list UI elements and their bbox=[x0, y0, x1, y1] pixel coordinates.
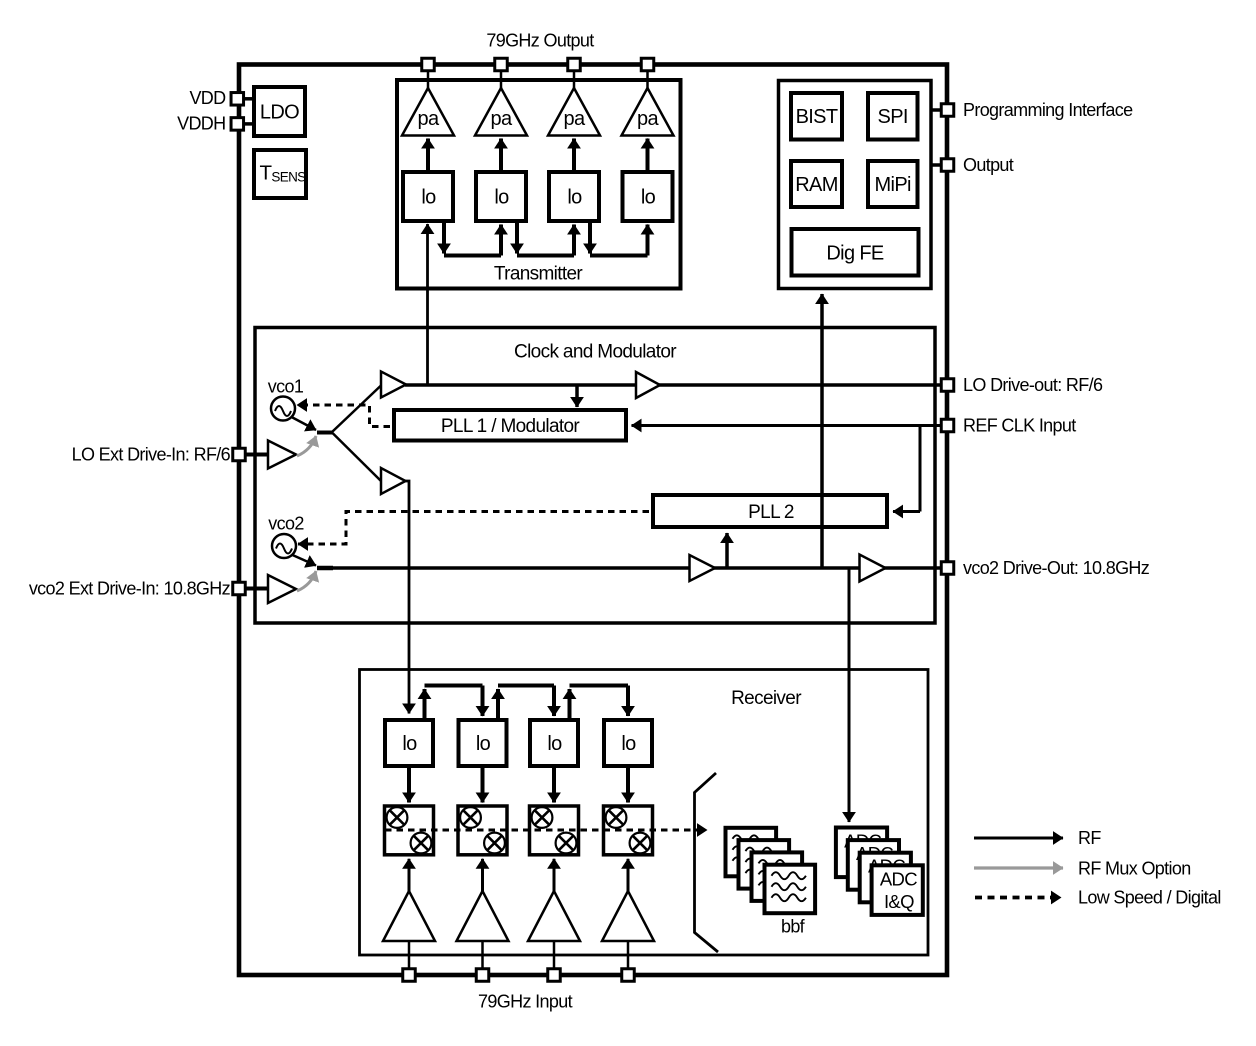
svg-text:bbf: bbf bbox=[781, 916, 806, 936]
svg-text:I&Q: I&Q bbox=[884, 891, 914, 912]
svg-text:pa: pa bbox=[564, 108, 586, 130]
svg-text:Programming Interface: Programming Interface bbox=[963, 100, 1133, 120]
svg-text:lo: lo bbox=[547, 733, 562, 755]
svg-text:lo: lo bbox=[567, 187, 582, 209]
svg-text:lo: lo bbox=[421, 187, 436, 209]
svg-text:pa: pa bbox=[637, 108, 659, 130]
svg-text:Low Speed / Digital: Low Speed / Digital bbox=[1078, 888, 1221, 908]
svg-text:Output: Output bbox=[963, 155, 1014, 175]
svg-text:PLL 1 / Modulator: PLL 1 / Modulator bbox=[441, 416, 581, 437]
svg-text:RAM: RAM bbox=[795, 174, 838, 196]
svg-text:Dig FE: Dig FE bbox=[826, 242, 884, 264]
svg-text:RF: RF bbox=[1078, 828, 1101, 848]
svg-text:PLL 2: PLL 2 bbox=[748, 502, 794, 523]
svg-text:Receiver: Receiver bbox=[731, 688, 802, 709]
svg-text:vco2 Drive-Out: 10.8GHz: vco2 Drive-Out: 10.8GHz bbox=[963, 558, 1150, 578]
svg-text:BIST: BIST bbox=[796, 106, 838, 128]
svg-text:vco1: vco1 bbox=[268, 376, 304, 396]
svg-text:lo: lo bbox=[476, 733, 491, 755]
svg-text:LO Drive-out: RF/6: LO Drive-out: RF/6 bbox=[963, 375, 1103, 395]
svg-text:Transmitter: Transmitter bbox=[494, 264, 584, 285]
svg-text:LO Ext Drive-In: RF/6: LO Ext Drive-In: RF/6 bbox=[72, 445, 231, 465]
svg-text:lo: lo bbox=[402, 733, 417, 755]
svg-text:MiPi: MiPi bbox=[875, 174, 911, 196]
svg-text:Clock and Modulator: Clock and Modulator bbox=[514, 342, 677, 363]
svg-text:VDD: VDD bbox=[189, 88, 226, 108]
svg-text:vco2 Ext Drive-In: 10.8GHz: vco2 Ext Drive-In: 10.8GHz bbox=[29, 578, 231, 598]
svg-text:SPI: SPI bbox=[878, 106, 908, 128]
svg-text:pa: pa bbox=[418, 108, 440, 130]
svg-text:ADC: ADC bbox=[880, 868, 917, 889]
svg-text:lo: lo bbox=[641, 187, 656, 209]
svg-text:VDDH: VDDH bbox=[177, 114, 225, 134]
svg-text:lo: lo bbox=[494, 187, 509, 209]
svg-text:RF Mux Option: RF Mux Option bbox=[1078, 859, 1191, 879]
svg-text:LDO: LDO bbox=[260, 101, 299, 123]
svg-text:REF CLK Input: REF CLK Input bbox=[963, 416, 1076, 436]
svg-text:vco2: vco2 bbox=[268, 513, 304, 533]
svg-text:lo: lo bbox=[621, 733, 636, 755]
svg-text:79GHz Input: 79GHz Input bbox=[478, 991, 573, 1011]
svg-text:pa: pa bbox=[491, 108, 513, 130]
svg-text:79GHz Output: 79GHz Output bbox=[486, 30, 594, 50]
